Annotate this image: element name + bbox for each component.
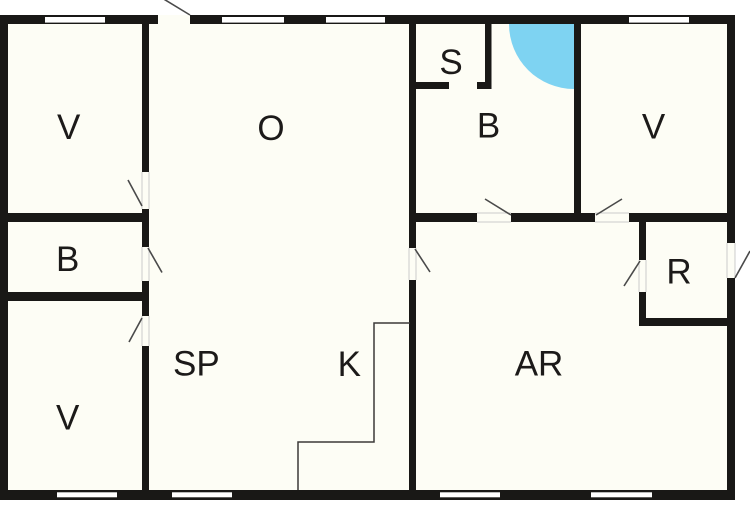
svg-text:B: B	[477, 107, 500, 146]
svg-text:V: V	[56, 399, 80, 438]
svg-text:SP: SP	[173, 345, 220, 384]
svg-text:K: K	[338, 345, 361, 384]
svg-text:O: O	[257, 109, 284, 148]
svg-text:R: R	[666, 253, 691, 292]
svg-text:V: V	[642, 108, 666, 147]
svg-text:V: V	[57, 108, 81, 147]
svg-text:S: S	[439, 43, 462, 82]
svg-text:B: B	[56, 240, 79, 279]
svg-text:AR: AR	[515, 345, 564, 384]
